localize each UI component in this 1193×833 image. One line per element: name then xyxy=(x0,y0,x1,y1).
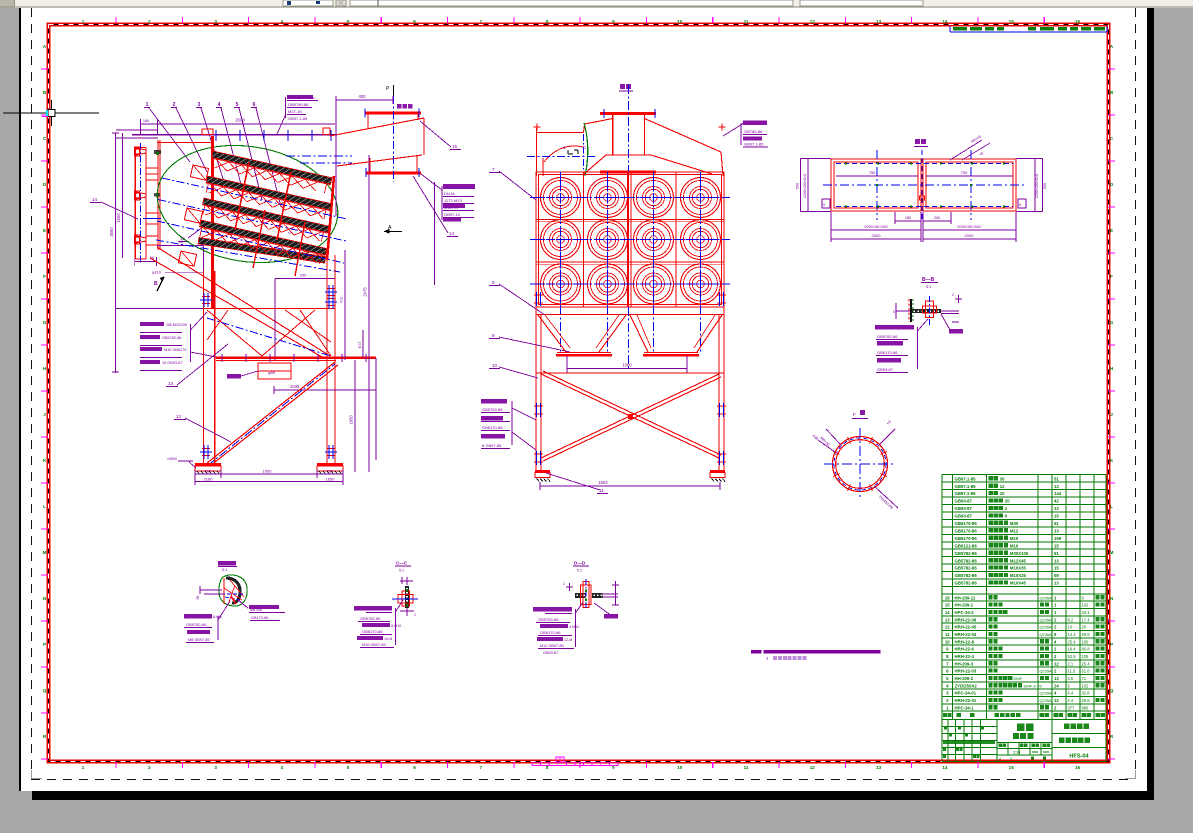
svg-text:11: 11 xyxy=(744,19,749,24)
svg-text:HRH-22-04: HRH-22-04 xyxy=(955,632,977,637)
svg-text:52.5: 52.5 xyxy=(1068,654,1077,659)
svg-text:GB6121-86: GB6121-86 xyxy=(955,543,978,548)
svg-text:102: 102 xyxy=(1082,603,1090,608)
svg-text:3560: 3560 xyxy=(109,227,114,237)
svg-text:GB5782-86: GB5782-86 xyxy=(162,336,181,340)
svg-text:GB97.1-85: GB97.1-85 xyxy=(955,476,977,481)
svg-text:1650: 1650 xyxy=(326,477,336,482)
svg-text:HRH-22-05: HRH-22-05 xyxy=(955,625,977,630)
svg-text:M12X45: M12X45 xyxy=(1010,558,1027,563)
svg-text:C—C: C—C xyxy=(396,561,408,566)
svg-text:16: 16 xyxy=(1075,19,1081,24)
svg-text:4: 4 xyxy=(999,757,1001,761)
svg-text:3: 3 xyxy=(214,765,217,770)
svg-text:F: F xyxy=(1110,274,1113,279)
svg-text:159: 159 xyxy=(1054,536,1062,541)
svg-text:51: 51 xyxy=(1054,521,1059,526)
svg-text:Q235A: Q235A xyxy=(1040,632,1053,637)
svg-text:42: 42 xyxy=(1054,499,1059,504)
svg-text:5:1: 5:1 xyxy=(399,569,404,573)
svg-text:15: 15 xyxy=(1054,566,1059,571)
svg-text:GB97.1-86: GB97.1-86 xyxy=(955,491,977,496)
svg-text:HH-209-11: HH-209-11 xyxy=(955,595,976,600)
svg-text:144: 144 xyxy=(1054,491,1062,496)
svg-text:29.8: 29.8 xyxy=(1082,632,1091,637)
svg-text:M30X100: M30X100 xyxy=(1010,551,1029,556)
svg-text:11.3: 11.3 xyxy=(1068,669,1076,674)
svg-text:500: 500 xyxy=(1043,183,1047,189)
svg-text:F: F xyxy=(43,274,46,279)
svg-text:GB93-87: GB93-87 xyxy=(955,514,973,519)
svg-text:377: 377 xyxy=(1068,705,1076,710)
svg-text:10 GB93-87: 10 GB93-87 xyxy=(162,361,182,365)
svg-text:M: M xyxy=(1110,550,1114,555)
svg-text:GB170-86: GB170-86 xyxy=(251,616,268,620)
svg-text:4-M12: 4-M12 xyxy=(569,625,579,629)
svg-text:2.4: 2.4 xyxy=(1068,698,1074,703)
svg-text:12-M: 12-M xyxy=(564,638,572,642)
svg-text:2090×50=940: 2090×50=940 xyxy=(957,225,980,229)
svg-text:5: 5 xyxy=(1019,203,1021,207)
svg-text:M27-18: M27-18 xyxy=(288,109,302,114)
svg-text:HH-209-3: HH-209-3 xyxy=(955,661,974,666)
svg-text:20: 20 xyxy=(1005,499,1010,504)
svg-text:Q: Q xyxy=(43,688,47,693)
svg-text:59: 59 xyxy=(1054,573,1059,578)
svg-text:260: 260 xyxy=(205,468,212,473)
svg-text:GB97.1-85: GB97.1-85 xyxy=(288,116,308,121)
svg-text:14: 14 xyxy=(945,610,950,615)
svg-text:1602: 1602 xyxy=(598,480,608,485)
svg-text:1038: 1038 xyxy=(290,384,300,389)
svg-text:105: 105 xyxy=(1082,654,1090,659)
svg-text:2475: 2475 xyxy=(363,287,368,297)
svg-text:2: 2 xyxy=(563,582,565,586)
svg-text:L: L xyxy=(1110,504,1113,509)
svg-text:GB93-87: GB93-87 xyxy=(543,651,558,655)
svg-text:HRH-22-06: HRH-22-06 xyxy=(955,617,977,622)
svg-text:13: 13 xyxy=(945,617,950,622)
svg-text:2090×50=940: 2090×50=940 xyxy=(864,225,887,229)
svg-text:DN-M: DN-M xyxy=(444,191,454,196)
svg-text:6.4: 6.4 xyxy=(1068,691,1074,696)
svg-text:GB6170-86: GB6170-86 xyxy=(540,630,561,635)
svg-text:GB97.1-85: GB97.1-85 xyxy=(744,142,764,147)
svg-text:J: J xyxy=(1110,412,1113,417)
svg-text:14: 14 xyxy=(449,231,455,236)
svg-text:13: 13 xyxy=(876,765,882,770)
svg-text:HPC-34-01: HPC-34-01 xyxy=(955,691,977,696)
svg-text:Q235A: Q235A xyxy=(1040,625,1053,630)
svg-text:10: 10 xyxy=(1068,625,1073,630)
svg-text:980: 980 xyxy=(1082,705,1090,710)
svg-text:400: 400 xyxy=(359,94,367,99)
svg-text:13: 13 xyxy=(1054,484,1059,489)
svg-text:61.8: 61.8 xyxy=(1082,669,1091,674)
svg-text:E: E xyxy=(43,228,46,233)
svg-text:HPC-34-1: HPC-34-1 xyxy=(955,705,975,710)
svg-text:5:1: 5:1 xyxy=(222,568,227,572)
svg-text:HH-209-2: HH-209-2 xyxy=(955,676,974,681)
svg-text:HRH-22-01: HRH-22-01 xyxy=(955,698,977,703)
svg-text:13: 13 xyxy=(1054,676,1059,681)
svg-text:2.1: 2.1 xyxy=(1068,661,1074,666)
svg-text:500: 500 xyxy=(796,183,800,189)
svg-text:43.1: 43.1 xyxy=(1082,610,1091,615)
svg-text:C: C xyxy=(583,146,586,150)
svg-text:M8-M10: M8-M10 xyxy=(482,416,497,421)
svg-text:13: 13 xyxy=(1054,528,1059,533)
svg-text:1: 1 xyxy=(82,19,85,24)
svg-text:M10X35: M10X35 xyxy=(1010,566,1027,571)
svg-text:2000: 2000 xyxy=(965,233,975,238)
svg-text:14.4: 14.4 xyxy=(1068,632,1077,637)
svg-text:5:1: 5:1 xyxy=(926,285,931,289)
svg-text:HFS-04: HFS-04 xyxy=(1069,754,1089,760)
svg-text:51: 51 xyxy=(1054,551,1059,556)
svg-text:20: 20 xyxy=(1082,625,1087,630)
svg-text:M10 GB6170: M10 GB6170 xyxy=(164,348,186,352)
svg-text:M8 GB97-85: M8 GB97-85 xyxy=(188,638,210,642)
svg-text:32.8: 32.8 xyxy=(1082,691,1091,696)
svg-text:15: 15 xyxy=(1009,765,1015,770)
svg-text:71: 71 xyxy=(1082,676,1087,681)
svg-text:Q235A: Q235A xyxy=(1040,698,1053,703)
svg-text:1: 1 xyxy=(82,765,85,770)
svg-text:2008: 2008 xyxy=(235,118,245,123)
svg-text:10: 10 xyxy=(492,363,498,368)
svg-text:2: 2 xyxy=(414,613,416,617)
svg-text:GB5780-86: GB5780-86 xyxy=(288,102,309,107)
svg-text:φ110: φ110 xyxy=(152,270,162,275)
svg-text:10-M: 10-M xyxy=(384,637,392,641)
svg-text:GB93-87: GB93-87 xyxy=(955,506,973,511)
svg-text:φ50: φ50 xyxy=(268,370,276,375)
svg-text:Q235A: Q235A xyxy=(1040,595,1053,600)
svg-text:HPC-34-2: HPC-34-2 xyxy=(955,610,975,615)
svg-text:13: 13 xyxy=(876,19,882,24)
svg-text:1500: 1500 xyxy=(116,213,121,223)
svg-text:2000: 2000 xyxy=(872,233,882,238)
svg-text:HRH-22-03: HRH-22-03 xyxy=(955,669,977,674)
svg-text:7: 7 xyxy=(492,167,495,172)
svg-text:180: 180 xyxy=(905,216,911,220)
svg-text:E: E xyxy=(1110,228,1113,233)
svg-text:1950: 1950 xyxy=(349,415,354,425)
svg-text:1: 1 xyxy=(1010,757,1012,761)
svg-text:P: P xyxy=(43,642,46,647)
svg-text:m500: m500 xyxy=(168,457,178,461)
svg-text:GB5782-86: GB5782-86 xyxy=(538,617,559,622)
svg-text:25.4: 25.4 xyxy=(1082,661,1091,666)
svg-text:M10X45: M10X45 xyxy=(1010,581,1027,586)
svg-text:10: 10 xyxy=(677,19,683,24)
svg-text:G: G xyxy=(43,320,47,325)
svg-text:1050: 1050 xyxy=(263,468,273,473)
svg-text:GB6170-86: GB6170-86 xyxy=(955,521,978,526)
svg-text:GB5782-86: GB5782-86 xyxy=(955,573,978,578)
svg-text:5: 5 xyxy=(893,310,895,314)
svg-text:13: 13 xyxy=(168,381,174,386)
svg-text:GB5782-86: GB5782-86 xyxy=(955,581,978,586)
svg-text:16: 16 xyxy=(1075,765,1081,770)
svg-text:11: 11 xyxy=(599,488,604,493)
svg-text:250: 250 xyxy=(300,273,307,278)
svg-text:GB5782-86: GB5782-86 xyxy=(955,558,978,563)
svg-text:412: 412 xyxy=(340,297,344,303)
svg-text:102: 102 xyxy=(1082,683,1090,688)
svg-text:8.2: 8.2 xyxy=(1068,617,1074,622)
svg-text:C: C xyxy=(563,146,566,150)
svg-text:GB97-10: GB97-10 xyxy=(444,212,461,217)
svg-text:5: 5 xyxy=(347,19,350,24)
svg-text:M10X25: M10X25 xyxy=(1010,573,1027,578)
svg-text:10: 10 xyxy=(1000,491,1005,496)
svg-text:GB-M10X35: GB-M10X35 xyxy=(166,323,187,327)
svg-text:HRH-22-6: HRH-22-6 xyxy=(955,647,975,652)
svg-text:M30: M30 xyxy=(1010,521,1019,526)
svg-text:M12: M12 xyxy=(1010,528,1019,533)
svg-text:2: 2 xyxy=(952,293,954,297)
svg-text:15: 15 xyxy=(1009,19,1015,24)
svg-text:D—D: D—D xyxy=(574,561,586,566)
svg-text:15: 15 xyxy=(1054,543,1059,548)
svg-text:750: 750 xyxy=(961,170,968,175)
svg-text:M: M xyxy=(43,550,47,555)
svg-text:GB6170-86: GB6170-86 xyxy=(362,629,383,634)
svg-text:B: B xyxy=(154,281,158,287)
svg-text:51: 51 xyxy=(1054,476,1059,481)
svg-text:GB6170-86: GB6170-86 xyxy=(955,536,978,541)
svg-text:15: 15 xyxy=(1054,514,1059,519)
svg-text:1:10: 1:10 xyxy=(1013,750,1020,754)
svg-text:Q: Q xyxy=(1110,688,1114,693)
svg-text:8-M10: 8-M10 xyxy=(391,624,401,628)
svg-text:GB786-86: GB786-86 xyxy=(744,129,763,134)
svg-text:4.5: 4.5 xyxy=(1068,676,1074,681)
svg-text:GB5782-86: GB5782-86 xyxy=(877,334,898,339)
svg-text:86.8: 86.8 xyxy=(1082,647,1091,652)
svg-text:12: 12 xyxy=(810,19,816,24)
svg-text:12: 12 xyxy=(810,765,816,770)
svg-text:DMF: DMF xyxy=(1014,676,1023,681)
svg-text:2: 2 xyxy=(148,19,151,24)
svg-text:10: 10 xyxy=(677,765,683,770)
svg-text:13: 13 xyxy=(1054,506,1059,511)
svg-text:6: 6 xyxy=(413,765,416,770)
svg-text:5: 5 xyxy=(347,765,350,770)
svg-text:ZYD/250X2: ZYD/250X2 xyxy=(955,683,978,688)
svg-text:8: 8 xyxy=(492,280,495,285)
svg-text:12: 12 xyxy=(1054,698,1059,703)
svg-text:11: 11 xyxy=(744,765,749,770)
svg-text:GB93-87: GB93-87 xyxy=(877,367,894,372)
svg-text:M10: M10 xyxy=(1010,543,1019,548)
svg-text:14: 14 xyxy=(942,765,948,770)
svg-text:750: 750 xyxy=(869,170,876,175)
svg-text:GB6170-86: GB6170-86 xyxy=(877,350,898,355)
svg-text:18.4: 18.4 xyxy=(1068,647,1077,652)
svg-text:DMF-Z-25: DMF-Z-25 xyxy=(1024,683,1043,688)
svg-text:HRH-22-8: HRH-22-8 xyxy=(955,639,975,644)
svg-text:25.4: 25.4 xyxy=(1068,639,1077,644)
svg-text:8: 8 xyxy=(546,19,549,24)
svg-text:14: 14 xyxy=(92,197,98,202)
svg-text:100: 100 xyxy=(1082,639,1090,644)
svg-text:Q235A: Q235A xyxy=(1040,617,1053,622)
svg-text:1172-M13: 1172-M13 xyxy=(444,198,462,203)
svg-text:30: 30 xyxy=(1000,476,1005,481)
svg-text:1200×100×5=0: 1200×100×5=0 xyxy=(1035,174,1039,198)
svg-text:P: P xyxy=(1110,642,1113,647)
svg-text:7: 7 xyxy=(480,765,483,770)
svg-text:Q235A: Q235A xyxy=(1040,669,1053,674)
svg-text:GB5782-86: GB5782-86 xyxy=(360,616,381,621)
svg-text:15: 15 xyxy=(945,603,950,608)
svg-text:13: 13 xyxy=(1054,581,1059,586)
svg-text:10: 10 xyxy=(945,639,950,644)
svg-text:16: 16 xyxy=(945,595,950,600)
svg-text:GB5782-86: GB5782-86 xyxy=(482,407,503,412)
svg-text:12: 12 xyxy=(945,625,950,630)
svg-text:5: 5 xyxy=(823,203,825,207)
svg-text:2: 2 xyxy=(148,765,151,770)
svg-text:φ12: φ12 xyxy=(358,342,362,349)
svg-text:GB5782-86: GB5782-86 xyxy=(955,566,978,571)
svg-text:5:1: 5:1 xyxy=(577,569,582,573)
svg-text:L: L xyxy=(43,504,46,509)
svg-text:230: 230 xyxy=(327,468,334,473)
svg-text:12: 12 xyxy=(176,414,182,419)
svg-text:3: 3 xyxy=(214,19,217,24)
svg-text:GB6170-86: GB6170-86 xyxy=(482,425,503,430)
svg-text:GB5782-86: GB5782-86 xyxy=(955,551,978,556)
svg-text:GB97.1-85: GB97.1-85 xyxy=(955,484,977,489)
svg-text:GB5782-86: GB5782-86 xyxy=(186,622,207,627)
svg-text:24: 24 xyxy=(1054,683,1059,688)
svg-text:HRH-22-4: HRH-22-4 xyxy=(955,654,975,659)
svg-text:7: 7 xyxy=(480,19,483,24)
svg-text:M10 GB97-85: M10 GB97-85 xyxy=(362,643,386,647)
svg-text:184: 184 xyxy=(143,119,149,123)
svg-text:14: 14 xyxy=(942,19,948,24)
svg-text:4: 4 xyxy=(281,19,284,24)
svg-text:9: 9 xyxy=(612,19,615,24)
svg-text:11: 11 xyxy=(945,632,950,637)
svg-text:4: 4 xyxy=(281,765,284,770)
svg-text:13: 13 xyxy=(1054,558,1059,563)
svg-text:8 GB97-85: 8 GB97-85 xyxy=(482,443,502,448)
svg-text:GB6170-86: GB6170-86 xyxy=(955,528,978,533)
svg-text:28.8: 28.8 xyxy=(1082,698,1091,703)
svg-text:M10: M10 xyxy=(1010,536,1019,541)
svg-text:6: 6 xyxy=(413,19,416,24)
svg-text:Q235A: Q235A xyxy=(1040,691,1053,696)
svg-text:16: 16 xyxy=(452,144,458,149)
svg-text:1000: 1000 xyxy=(622,363,632,368)
svg-text:12: 12 xyxy=(1000,484,1005,489)
svg-text:200: 200 xyxy=(934,216,940,220)
svg-text:G: G xyxy=(1110,320,1114,325)
svg-text:9: 9 xyxy=(492,333,495,338)
svg-text:12: 12 xyxy=(1054,661,1059,666)
svg-text:GB93-87: GB93-87 xyxy=(955,499,973,504)
svg-text:HH-209-1: HH-209-1 xyxy=(955,603,974,608)
svg-text:2180: 2180 xyxy=(204,477,214,482)
svg-text:17.4: 17.4 xyxy=(1082,617,1091,622)
svg-text:1200×100×5=0: 1200×100×5=0 xyxy=(803,174,807,198)
svg-text:M12 GB97-85: M12 GB97-85 xyxy=(540,644,564,648)
svg-text:J: J xyxy=(43,412,46,417)
svg-text:F: F xyxy=(853,412,856,417)
